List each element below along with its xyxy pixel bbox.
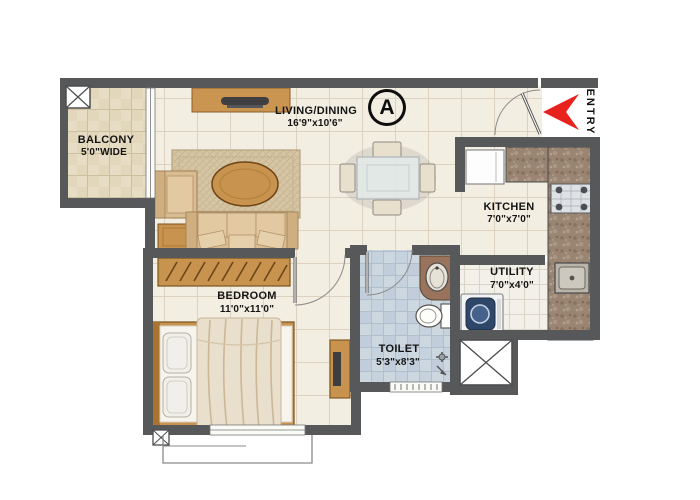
floor-plan-drawing [0,0,700,500]
kitchen-label: KITCHEN [484,202,535,213]
entry-label: ENTRY [582,82,596,142]
toilet-ventilator-window [390,382,442,392]
washing-machine [461,294,503,334]
corner-column-x [153,430,169,445]
fridge [466,150,504,184]
living-room-dims: 16'9"x10'6" [287,119,342,129]
dresser-tv [330,340,350,398]
bedroom-dims: 11'0"x11'0" [220,305,274,315]
balcony-column-x [66,86,90,108]
tv-icon [221,97,269,105]
bedroom-window [210,425,305,435]
sofa [186,212,298,250]
kitchen-dims: 7'0"x7'0" [487,215,531,225]
hob [551,184,592,213]
balcony-dims: 5'0"WIDE [81,148,127,158]
wc [416,304,452,328]
living-room-label: LIVING/DINING [275,106,357,117]
toilet-dims: 5'3"x8'3" [376,358,420,368]
wardrobe [158,258,290,286]
balcony-slider-window [146,88,155,198]
bedroom-label: BEDROOM [217,291,277,302]
armchair [155,171,197,218]
washbasin [420,256,452,300]
utility-sink [555,263,589,293]
utility-label: UTILITY [490,267,534,278]
unit-marker-a-letter: A [379,96,394,120]
bedroom-tv-icon [333,352,341,386]
floor-plan: LIVING/DINING 16'9"x10'6" BALCONY 5'0"WI… [0,0,700,500]
dining-table [357,157,419,199]
duct-shaft-x [460,340,512,385]
ledge-outline [163,435,312,463]
coffee-table [212,162,278,206]
toilet-label: TOILET [379,344,420,355]
balcony-label: BALCONY [78,135,135,146]
utility-dims: 7'0"x4'0" [490,281,534,291]
bed [150,318,294,430]
unit-marker-a: A [368,89,406,126]
